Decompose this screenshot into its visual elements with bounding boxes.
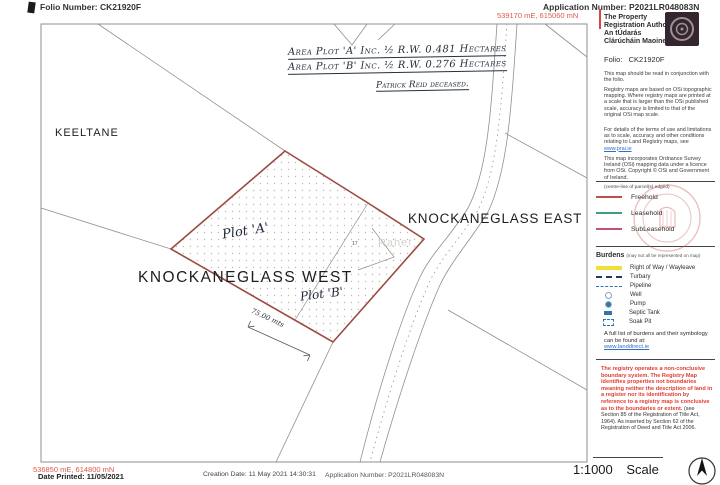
burdens-footer-text: A full list of burdens and their symbolo… [604, 331, 708, 344]
terms-note: For details of the terms of use and limi… [604, 127, 712, 152]
pipeline-symbol [596, 286, 622, 287]
copyright-note: This map incorporates Ordnance Survey Ir… [604, 156, 712, 181]
prai-seal-stamp [632, 183, 702, 253]
townland-keeltane: KEELTANE [55, 127, 119, 139]
burden-row-right-of-way: Right of Way / Wayleave [596, 264, 716, 272]
subleasehold-line-swatch [596, 228, 622, 230]
scale-ratio: 1:1000 [573, 462, 613, 477]
folio-number: Folio Number: CK21920F [40, 2, 141, 12]
boundary-bottom [276, 342, 333, 462]
handwritten-signature-note: Patrick Reid deceased. [376, 79, 469, 92]
burdens-title: Burdens (may not all be represented on m… [596, 252, 700, 259]
creation-date: Creation Date: 11 May 2021 14:30:31 [203, 471, 316, 478]
sidebar-folio-label: Folio: [604, 55, 622, 64]
turbary-symbol [596, 276, 622, 278]
divider [596, 359, 715, 360]
boundary-right-upper [505, 133, 587, 178]
map-scale: 1:1000 Scale [573, 462, 659, 477]
divider [593, 457, 663, 458]
faint-townland-label: Raher [378, 236, 413, 249]
townland-knockaneglass-east: KNOCKANEGLASS EAST [408, 211, 582, 226]
boundary-left [41, 208, 171, 249]
landdirect-link[interactable]: www.landdirect.ie [604, 344, 649, 350]
prai-seal-icon [632, 183, 702, 253]
osi-accuracy-note: Registry maps are based on OSi topograph… [604, 87, 712, 118]
divider [596, 181, 715, 182]
townland-knockaneglass-west: KNOCKANEGLASS WEST [138, 269, 353, 287]
application-number-footer: Application Number: P2021LR048083N [325, 472, 444, 479]
leasehold-line-swatch [596, 212, 622, 214]
well-symbol [605, 292, 612, 299]
read-in-conjunction-note: This map should be read in conjunction w… [604, 71, 712, 83]
parcel-number: 17 [352, 241, 358, 247]
boundary-warning: The registry operates a non-conclusive b… [601, 366, 713, 432]
top-right-coordinates: 539170 mE, 615060 mN [497, 11, 578, 20]
burden-row-septic-tank: Septic Tank [596, 309, 716, 317]
burdens-caption: (may not all be represented on map) [626, 253, 700, 258]
burden-label-pipeline: Pipeline [630, 283, 651, 289]
burden-label-pump: Pump [630, 301, 646, 307]
septic-tank-symbol [604, 311, 612, 316]
pump-symbol [605, 301, 612, 308]
freehold-line-swatch [596, 196, 622, 198]
field-mark [378, 24, 395, 40]
prai-logo [665, 12, 699, 46]
burden-label-septic-tank: Septic Tank [629, 310, 660, 316]
prai-logo-icon [665, 12, 699, 46]
burden-row-pipeline: Pipeline [596, 282, 716, 290]
sidebar-folio-value: CK21920F [629, 55, 665, 64]
burdens-footer: A full list of burdens and their symbolo… [604, 331, 708, 351]
burden-row-well: Well [596, 291, 716, 299]
boundary-top-right [545, 24, 587, 57]
burden-label-turbary: Turbary [630, 274, 650, 280]
bottom-left-coordinates: 536850 mE, 614800 mN [33, 465, 114, 474]
burden-row-soak-pit: Soak Pit [596, 318, 716, 326]
scale-label: Scale [626, 462, 659, 477]
terms-note-text: For details of the terms of use and limi… [604, 127, 711, 145]
burden-label-soak-pit: Soak Pit [629, 319, 651, 325]
burden-label-row: Right of Way / Wayleave [630, 265, 695, 271]
warning-red-text: The registry operates a non-conclusive b… [601, 366, 712, 412]
north-arrow-icon [686, 455, 718, 485]
burden-label-well: Well [630, 292, 642, 298]
burden-row-pump: Pump [596, 300, 716, 308]
field-mark-v [334, 24, 367, 45]
soak-pit-symbol [603, 319, 614, 326]
burdens-title-text: Burdens [596, 252, 624, 259]
boundary-right-lower [448, 310, 587, 390]
prai-website-link[interactable]: www.prai.ie [604, 146, 632, 152]
sidebar-folio: Folio: CK21920F [604, 55, 664, 64]
burden-row-turbary: Turbary [596, 273, 716, 281]
road-upper-left [98, 24, 285, 151]
right-of-way-symbol [596, 266, 622, 270]
